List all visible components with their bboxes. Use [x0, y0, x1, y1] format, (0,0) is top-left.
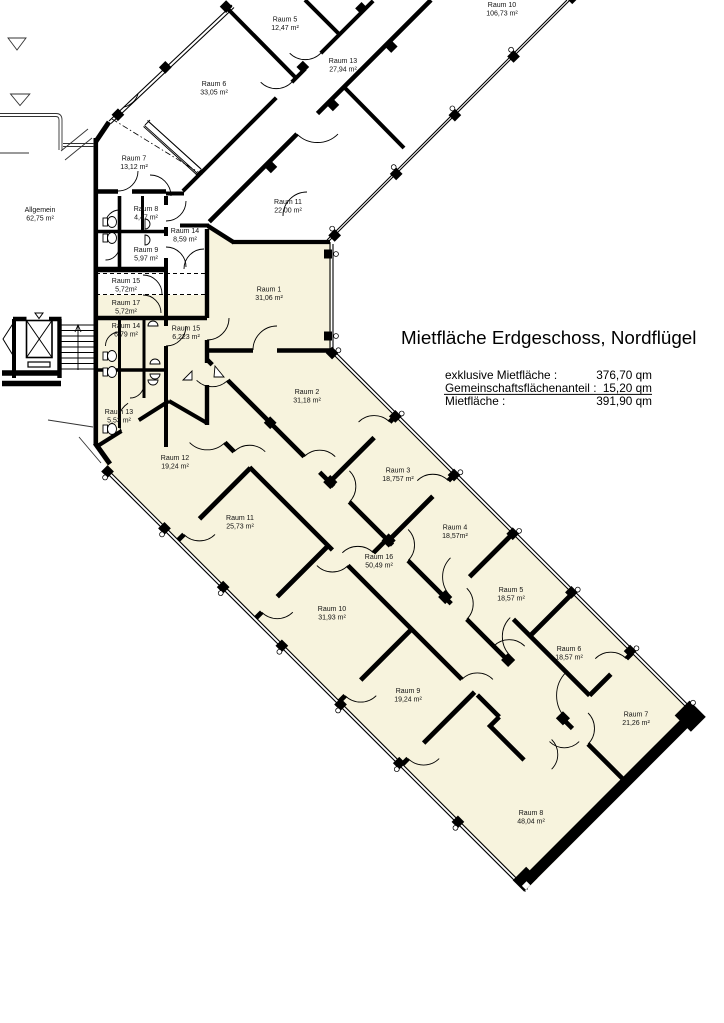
- svg-text:Raum 175,72m²: Raum 175,72m²: [112, 300, 141, 316]
- svg-text:Allgemein62,75 m²: Allgemein62,75 m²: [25, 207, 56, 223]
- svg-text:Raum 1125,73 m²: Raum 1125,73 m²: [226, 515, 254, 531]
- svg-text:15,20 qm: 15,20 qm: [603, 381, 652, 395]
- svg-text:Mietfläche :: Mietfläche :: [445, 394, 505, 408]
- svg-text:Raum 318,757 m²: Raum 318,757 m²: [382, 468, 414, 484]
- svg-text:376,70 qm: 376,70 qm: [596, 368, 652, 382]
- svg-text:Raum 919,24 m²: Raum 919,24 m²: [394, 688, 422, 704]
- svg-text:Gemeinschaftsflächenanteil :: Gemeinschaftsflächenanteil :: [445, 381, 596, 395]
- svg-text:Raum 721,26 m²: Raum 721,26 m²: [622, 712, 650, 728]
- svg-text:Raum 1650,49 m²: Raum 1650,49 m²: [365, 554, 394, 570]
- svg-text:Raum 148,59 m²: Raum 148,59 m²: [171, 228, 200, 244]
- svg-text:Raum 633,05 m²: Raum 633,05 m²: [200, 81, 228, 97]
- svg-text:Raum 1122,00 m²: Raum 1122,00 m²: [274, 199, 302, 215]
- svg-text:Raum 10106,73 m²: Raum 10106,73 m²: [486, 2, 518, 18]
- svg-text:Raum 146,79 m²: Raum 146,79 m²: [112, 323, 141, 339]
- svg-text:Raum 518,57 m²: Raum 518,57 m²: [497, 587, 525, 603]
- svg-text:exklusive Mietfläche :: exklusive Mietfläche :: [445, 368, 557, 382]
- svg-text:Raum 1219,24 m²: Raum 1219,24 m²: [161, 455, 190, 471]
- svg-text:Raum 848,04 m²: Raum 848,04 m²: [517, 810, 545, 826]
- svg-text:Raum 1327,94 m²: Raum 1327,94 m²: [329, 58, 358, 74]
- svg-text:Raum 713,12 m²: Raum 713,12 m²: [120, 155, 148, 171]
- svg-text:Raum 135,53 m²: Raum 135,53 m²: [105, 409, 134, 425]
- svg-text:Raum 95,97 m²: Raum 95,97 m²: [134, 247, 159, 263]
- svg-text:Raum 418,57m²: Raum 418,57m²: [442, 524, 468, 540]
- svg-text:Raum 84,47 m²: Raum 84,47 m²: [134, 206, 159, 222]
- svg-text:Raum 512,47 m²: Raum 512,47 m²: [271, 17, 299, 33]
- svg-text:Raum 231,18 m²: Raum 231,18 m²: [293, 389, 321, 405]
- svg-text:Raum 1031,93 m²: Raum 1031,93 m²: [318, 606, 347, 622]
- svg-text:Raum 618,57 m²: Raum 618,57 m²: [555, 646, 583, 662]
- svg-text:Mietfläche Erdgeschoss, Nordfl: Mietfläche Erdgeschoss, Nordflügel: [401, 327, 696, 348]
- svg-text:391,90 qm: 391,90 qm: [596, 394, 652, 408]
- svg-text:Raum 155,72m²: Raum 155,72m²: [112, 278, 141, 294]
- svg-text:Raum 131,06 m²: Raum 131,06 m²: [255, 286, 283, 302]
- svg-text:Raum 156,223 m²: Raum 156,223 m²: [172, 326, 201, 342]
